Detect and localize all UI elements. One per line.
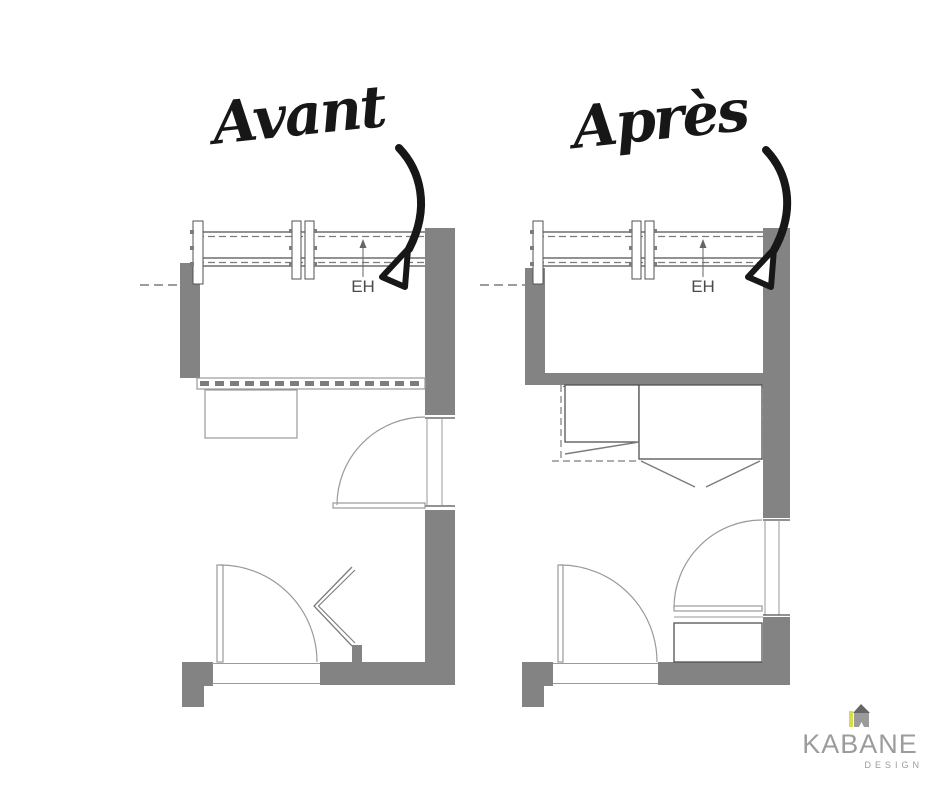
logo-brand-text: KABANE xyxy=(794,730,926,758)
before-sill-strip xyxy=(197,378,425,389)
before-after-floorplan-graphic: Avant Après xyxy=(0,0,940,788)
kabane-house-icon xyxy=(848,702,872,728)
kabane-logo: KABANE DESIGN xyxy=(794,702,926,770)
after-closet-left-door xyxy=(565,442,639,454)
floor-plan-after: EH xyxy=(480,215,800,715)
before-eh-label: EH xyxy=(351,277,375,296)
after-closet-right xyxy=(639,385,762,459)
before-middle-door xyxy=(333,417,455,508)
after-eh-annotation: EH xyxy=(691,239,715,296)
title-avant: Avant xyxy=(209,77,387,153)
before-desk xyxy=(205,390,297,438)
title-apres: Après xyxy=(569,81,750,157)
after-bottom-door-leaf xyxy=(558,565,563,662)
after-window-band xyxy=(530,221,763,284)
after-bottom-door xyxy=(553,565,658,684)
after-closet-right-door-right xyxy=(706,461,760,487)
before-bottom-door-leaf xyxy=(217,565,223,662)
after-closet-left xyxy=(565,385,639,442)
after-right-door-swing xyxy=(674,520,762,608)
before-eh-annotation: EH xyxy=(351,239,375,296)
logo-tagline-text: DESIGN xyxy=(794,760,926,770)
before-bottom-door xyxy=(212,565,320,684)
after-eh-label: EH xyxy=(691,277,715,296)
before-middle-door-swing xyxy=(337,417,425,505)
before-bifold-door xyxy=(314,567,355,646)
after-bottom-door-swing xyxy=(560,565,657,662)
before-window-band xyxy=(190,221,425,284)
after-right-door xyxy=(674,520,790,617)
before-middle-door-leaf xyxy=(333,503,425,508)
before-bottom-door-swing xyxy=(220,565,317,662)
after-right-door-leaf xyxy=(674,606,762,611)
after-cabinet xyxy=(674,623,762,662)
after-wardrobe xyxy=(552,385,763,487)
floor-plan-before: EH xyxy=(140,215,460,715)
after-closet-right-door-left xyxy=(641,461,695,487)
